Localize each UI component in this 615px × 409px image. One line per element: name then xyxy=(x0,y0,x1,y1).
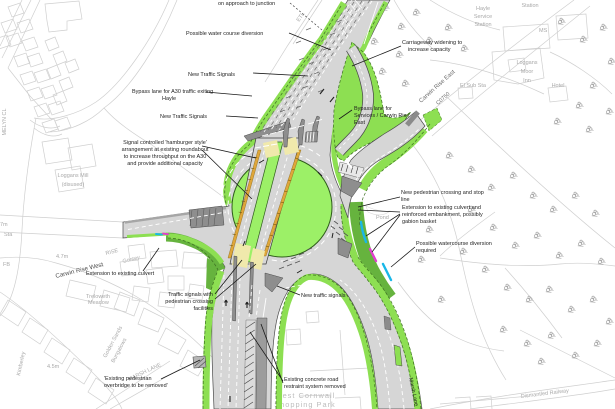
svg-text:New traffic signals: New traffic signals xyxy=(301,293,346,299)
svg-text:reinforced embankment, possibl: reinforced embankment, possibly xyxy=(402,212,483,218)
svg-text:New pedestrian crossing and st: New pedestrian crossing and stop xyxy=(401,190,484,196)
svg-text:Bypass lane for A30 traffic ex: Bypass lane for A30 traffic exiting xyxy=(132,89,213,95)
svg-text:overbridge to be removed': overbridge to be removed' xyxy=(104,383,168,389)
svg-text:Loggans Mill: Loggans Mill xyxy=(58,173,89,179)
svg-text:Station: Station xyxy=(474,22,491,28)
svg-text:pedestrian crossing: pedestrian crossing xyxy=(165,299,213,305)
svg-text:Carriageway widening to: Carriageway widening to xyxy=(402,40,462,46)
svg-text:Loggans: Loggans xyxy=(516,60,537,66)
svg-text:'Existing pedestrian: 'Existing pedestrian xyxy=(104,376,152,382)
svg-text:facilities: facilities xyxy=(193,306,213,312)
svg-text:line: line xyxy=(401,197,410,203)
svg-text:Station: Station xyxy=(521,3,538,9)
svg-text:East: East xyxy=(354,120,365,126)
svg-text:4.5m: 4.5m xyxy=(47,364,60,370)
svg-text:MS: MS xyxy=(539,28,548,34)
svg-text:7m: 7m xyxy=(0,222,8,228)
svg-text:and provide additional capacit: and provide additional capacity xyxy=(127,161,203,167)
svg-text:Meadow: Meadow xyxy=(88,300,109,306)
svg-text:Moor: Moor xyxy=(521,69,534,75)
svg-text:Possible water course diversio: Possible water course diversion xyxy=(186,31,263,37)
svg-text:Extension to existing culvert: Extension to existing culvert and xyxy=(402,205,481,211)
svg-text:Service: Service xyxy=(474,14,492,20)
svg-text:Traffic signals with: Traffic signals with xyxy=(168,292,213,298)
svg-text:Signal controlled 'hamburger s: Signal controlled 'hamburger style' xyxy=(123,140,207,146)
svg-text:Inn: Inn xyxy=(523,78,531,84)
svg-text:arrangement at existing rounda: arrangement at existing roundabout xyxy=(122,147,209,153)
svg-text:Possible watercourse diversion: Possible watercourse diversion xyxy=(416,241,492,247)
svg-text:New Traffic Signals: New Traffic Signals xyxy=(160,114,207,120)
svg-text:to increase throughput on the: to increase throughput on the A30 xyxy=(124,154,207,160)
svg-text:Extension to existing culvert: Extension to existing culvert xyxy=(86,271,155,277)
svg-text:Existing concrete road: Existing concrete road xyxy=(284,377,338,383)
svg-text:Shopping Park: Shopping Park xyxy=(274,400,335,409)
svg-text:(disused): (disused) xyxy=(62,182,85,188)
svg-text:Hayle: Hayle xyxy=(476,6,490,12)
svg-text:FB: FB xyxy=(3,262,10,268)
svg-text:El Sub Sta: El Sub Sta xyxy=(460,83,487,89)
svg-text:restraint system removed: restraint system removed xyxy=(284,384,346,390)
svg-text:Services / Carwin Rise: Services / Carwin Rise xyxy=(354,113,409,119)
svg-text:required: required xyxy=(416,248,436,254)
svg-text:4.7m: 4.7m xyxy=(56,254,69,260)
svg-text:New Traffic Signals: New Traffic Signals xyxy=(188,72,235,78)
svg-text:MELYN CL: MELYN CL xyxy=(2,108,8,135)
svg-text:Hayle: Hayle xyxy=(162,96,176,102)
svg-text:Hotel: Hotel xyxy=(552,83,565,89)
svg-text:West Cornwall: West Cornwall xyxy=(275,391,336,400)
svg-text:Pond: Pond xyxy=(376,215,389,221)
svg-text:gabion basket: gabion basket xyxy=(402,219,437,225)
svg-text:Bypass lane for: Bypass lane for xyxy=(354,106,392,112)
svg-text:on approach to junction: on approach to junction xyxy=(218,1,275,7)
svg-text:increase capacity: increase capacity xyxy=(408,47,451,53)
